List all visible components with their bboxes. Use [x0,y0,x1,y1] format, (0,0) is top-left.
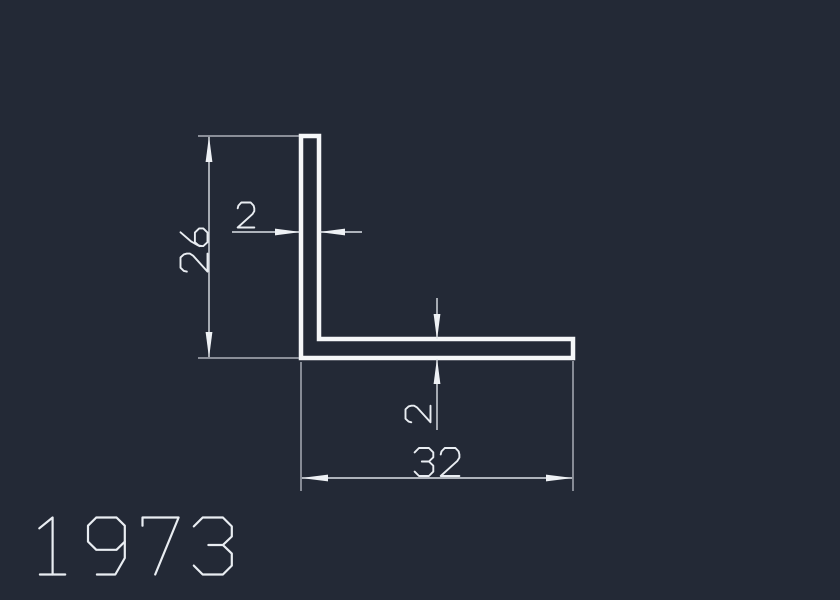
arrowhead [301,475,328,482]
drawing-canvas [0,0,840,600]
dimension-web-thickness [232,203,362,236]
dimension-leg-height [181,136,300,358]
arrowhead [434,314,441,340]
arrowhead [206,136,213,162]
dimension-flange-thickness [406,298,441,430]
arrowhead [434,358,441,384]
dimension-text-2-flange [406,406,431,423]
cad-viewport [0,0,840,600]
dimension-text-26 [181,228,208,271]
arrowhead [206,332,213,358]
arrowhead [275,229,301,236]
part-number-label [39,518,232,575]
dimension-text-2-web [238,203,255,228]
arrowhead [319,229,345,236]
arrowhead [546,475,573,482]
dimension-text-32 [415,448,460,476]
